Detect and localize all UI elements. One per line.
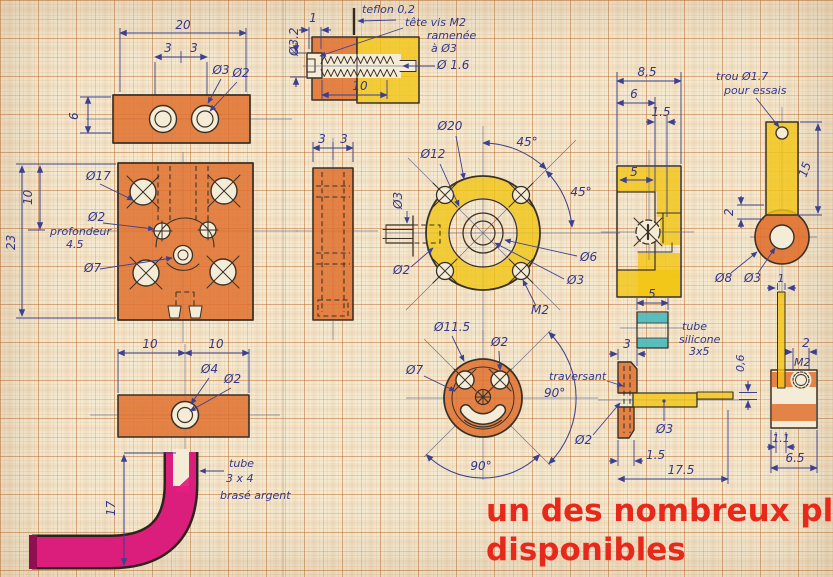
bent-tube-view: 17 tube 3 x 4 brasé argent bbox=[29, 449, 291, 569]
hub-top bbox=[618, 362, 637, 393]
dim-assembly-length: 17.5 bbox=[668, 463, 695, 477]
dim-bottom-left: 10 bbox=[142, 337, 158, 351]
dim-assembly-hole: Ø2 bbox=[574, 433, 592, 447]
dim-block-width: 6.5 bbox=[785, 451, 804, 465]
dim-flange-outer: Ø20 bbox=[437, 119, 463, 133]
dim-head-dia: Ø3.2 bbox=[287, 27, 301, 57]
tube-cut-end bbox=[29, 535, 37, 569]
note-teflon: teflon 0,2 bbox=[362, 3, 415, 16]
rod-flat-end bbox=[697, 392, 733, 399]
dim-length: 20 bbox=[175, 18, 191, 32]
bottom-bar-view: 10 10 Ø4 Ø2 bbox=[90, 337, 280, 454]
note-screw-1: tête vis M2 bbox=[405, 16, 466, 29]
caption-line2: disponibles bbox=[486, 532, 686, 568]
caption-line1: un des nombreux plans bbox=[486, 493, 833, 529]
disc-view: Ø11.5 Ø2 Ø7 90° bbox=[405, 320, 598, 480]
dim-bracket-width: 8,5 bbox=[637, 65, 656, 79]
note-tube-3: brasé argent bbox=[220, 489, 291, 502]
dim-thread-len: 10 bbox=[352, 79, 368, 93]
dim-flat: 0,6 bbox=[734, 355, 747, 373]
dim-side-pitch2: 3 bbox=[340, 132, 348, 146]
dim-disc-slot: Ø7 bbox=[405, 363, 423, 377]
label-cbore: Ø17 bbox=[85, 169, 111, 183]
dim-core-dia: Ø 1.6 bbox=[436, 58, 470, 72]
dim-bottom-hole-outer: Ø4 bbox=[200, 362, 218, 376]
dim-angle1: 45° bbox=[516, 135, 537, 149]
dim-side-pitch1: 3 bbox=[318, 132, 326, 146]
dim-angle2: 45° bbox=[570, 185, 591, 199]
label-flange-pin: Ø2 bbox=[392, 263, 410, 277]
dim-height: 6 bbox=[67, 112, 81, 120]
side-view-part bbox=[313, 168, 353, 320]
top-bar-part bbox=[113, 95, 250, 143]
plate-view: 23 10 Ø17 Ø2 profondeur 4.5 Ø7 bbox=[4, 152, 298, 342]
dim-plate-offset: 10 bbox=[21, 189, 35, 205]
label-flange-screw: M2 bbox=[531, 303, 549, 317]
dim-tube-height: 17 bbox=[104, 500, 118, 516]
dim-bracket-notch: 1.5 bbox=[651, 105, 670, 119]
note-test-hole-2: pour essais bbox=[723, 84, 787, 97]
dim-plate-height: 23 bbox=[4, 235, 18, 250]
dim-pitch1: 3 bbox=[164, 41, 172, 55]
dim-rod-dia: Ø3 bbox=[655, 422, 673, 436]
dim-pitch2: 3 bbox=[190, 41, 198, 55]
dim-bottom-right: 10 bbox=[208, 337, 224, 351]
hub-bottom bbox=[618, 407, 634, 438]
end-block-view: 2 M2 1.1 6.5 bbox=[767, 336, 817, 473]
dim-hub-thick: 1.5 bbox=[646, 448, 665, 462]
label-hole-outer: Ø3 bbox=[211, 63, 229, 77]
dim-hub-bore: Ø3 bbox=[566, 273, 584, 287]
note-silicone-1: tube bbox=[682, 320, 707, 333]
thin-strip bbox=[778, 292, 786, 388]
graph-paper-drawing: 20 3 3 Ø3 Ø2 6 bbox=[0, 0, 833, 577]
dim-strip-w: 1 bbox=[778, 272, 785, 285]
note-screw-3: à Ø3 bbox=[431, 42, 457, 55]
dim-disc-outer: Ø11.5 bbox=[433, 320, 470, 334]
label-center-hole: Ø7 bbox=[83, 261, 101, 275]
dim-bore: Ø6 bbox=[579, 250, 597, 264]
dim-thread-width: 2 bbox=[802, 336, 810, 350]
dim-bottom-hole-inner: Ø2 bbox=[223, 372, 241, 386]
note-tube-1: tube bbox=[229, 457, 254, 470]
test-hole bbox=[776, 127, 788, 139]
dim-disc-eye: Ø2 bbox=[490, 335, 508, 349]
dim-silicone-width: 5 bbox=[648, 287, 656, 301]
dim-ring-outer: Ø8 bbox=[714, 271, 732, 285]
note-tube-2: 3 x 4 bbox=[226, 472, 254, 485]
note-traversant: traversant bbox=[549, 370, 607, 383]
shaft-assembly-view: 3 traversant 90° Ø2 Ø3 1.5 17.5 0,6 bbox=[544, 337, 757, 484]
caption: un des nombreux plans disponibles bbox=[486, 493, 833, 568]
drawing-svg: 20 3 3 Ø3 Ø2 6 bbox=[0, 0, 833, 577]
screw-section-view: 1 Ø3.2 teflon 0,2 tête vis M2 ramenée à … bbox=[287, 3, 476, 103]
label-pin-hole: Ø2 bbox=[87, 210, 105, 224]
top-bar-view: 20 3 3 Ø3 Ø2 6 bbox=[67, 18, 292, 143]
dim-bracket-step: 6 bbox=[630, 87, 638, 101]
note-pin-1: profondeur bbox=[49, 225, 113, 238]
dim-bracket-slot: 5 bbox=[630, 165, 638, 179]
dim-disc-angle: 90° bbox=[470, 459, 491, 473]
dim-step: 1 bbox=[309, 11, 317, 25]
dim-bolt-circle: Ø12 bbox=[420, 147, 446, 161]
dim-shaft-dia: Ø3 bbox=[391, 192, 405, 210]
note-pin-2: 4.5 bbox=[66, 238, 84, 251]
note-silicone-3: 3x5 bbox=[689, 345, 710, 358]
dim-ring-bore: Ø3 bbox=[743, 271, 761, 285]
bracket-view: 8,5 6 1.5 5 bbox=[601, 65, 694, 297]
dim-hub-width: 3 bbox=[623, 337, 631, 351]
dim-block-strip: 1.1 bbox=[772, 432, 790, 445]
plate-side-view: 3 3 bbox=[296, 132, 378, 340]
label-block-thread: M2 bbox=[794, 356, 811, 369]
note-test-hole-1: trou Ø1.7 bbox=[716, 70, 768, 83]
dim-overlap: 2 bbox=[722, 208, 736, 216]
label-hole-inner: Ø2 bbox=[231, 66, 249, 80]
note-screw-2: ramenée bbox=[427, 29, 476, 42]
flange-view: Ø20 Ø12 45° 45° Ø6 Ø3 M2 Ø2 Ø3 bbox=[383, 119, 620, 342]
